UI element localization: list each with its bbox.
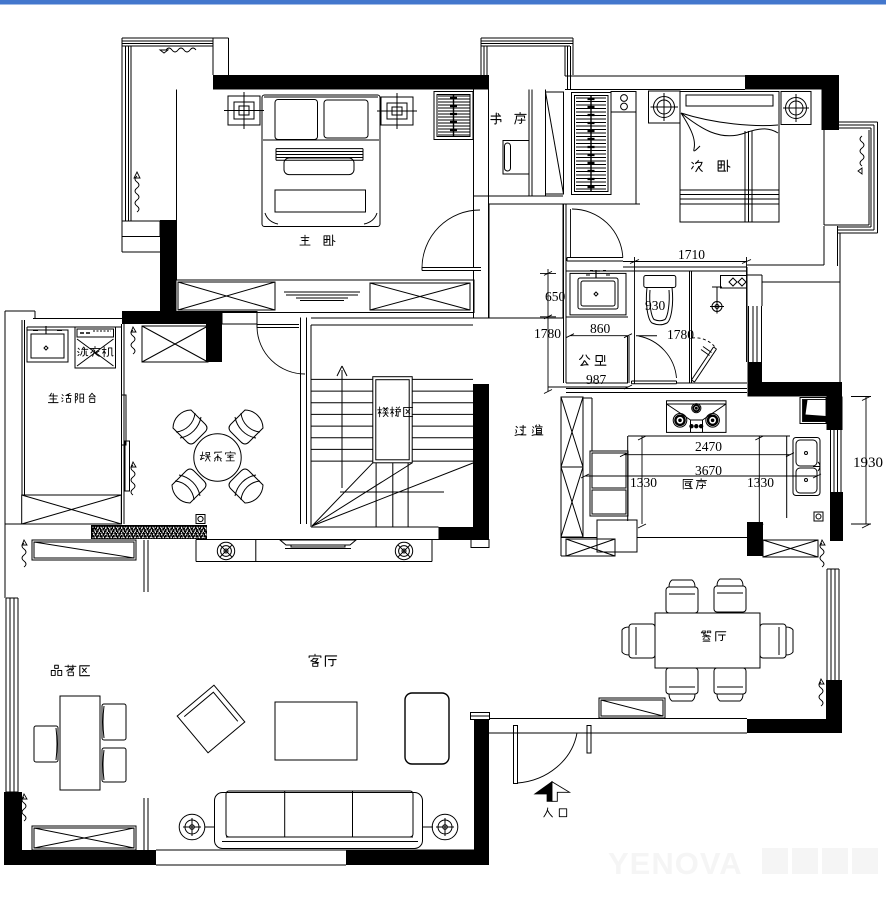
svg-text:1330: 1330 [747,475,774,490]
svg-text:1330: 1330 [630,475,657,490]
svg-text:1780: 1780 [534,326,561,341]
svg-text:860: 860 [590,321,611,336]
svg-text:1930: 1930 [853,455,883,471]
svg-text:987: 987 [586,372,607,387]
svg-text:650: 650 [545,289,566,304]
svg-text:1710: 1710 [678,247,705,262]
svg-text:930: 930 [645,298,666,313]
svg-text:YENOVA: YENOVA [608,846,743,881]
svg-text:2470: 2470 [695,439,722,454]
svg-text:3670: 3670 [695,463,722,478]
svg-text:1780: 1780 [667,327,694,342]
